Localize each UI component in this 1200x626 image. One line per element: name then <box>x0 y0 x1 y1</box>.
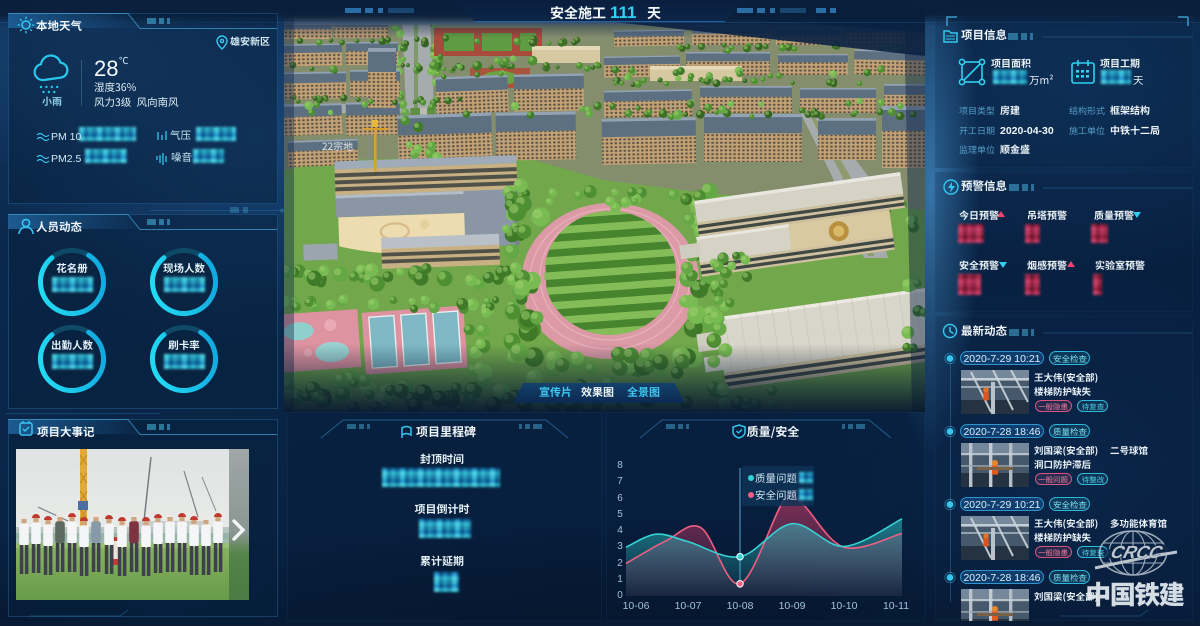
svg-text:CRCC: CRCC <box>1109 542 1166 562</box>
